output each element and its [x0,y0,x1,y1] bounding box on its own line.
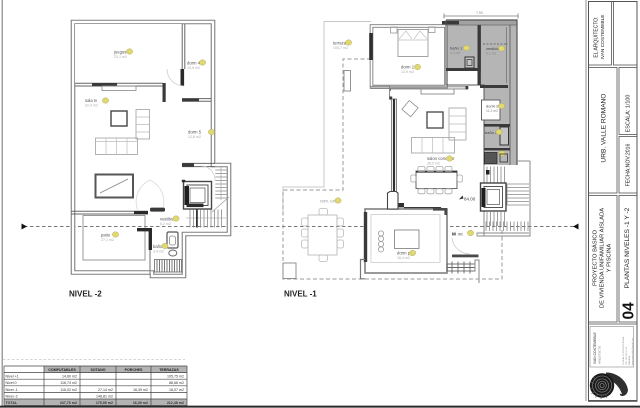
svg-text:247,76 m2: 247,76 m2 [60,401,77,405]
svg-text:TERRAZAS: TERRAZAS [159,368,179,372]
svg-text:3,4 m2: 3,4 m2 [153,250,164,254]
svg-text:MALAGA: MALAGA [628,355,631,365]
svg-text:patio: patio [101,233,111,238]
svg-text:27,14 m2: 27,14 m2 [98,388,113,392]
svg-text:4,3 m2: 4,3 m2 [450,51,460,55]
svg-text:6,2 m2: 6,2 m2 [160,222,171,226]
svg-text:Nivel -1: Nivel -1 [6,388,18,392]
svg-text:TOTAL: TOTAL [6,401,18,405]
svg-text:ARQUITECTO: ARQUITECTO [598,345,602,364]
svg-text:TLF: 952 80 12 34: TLF: 952 80 12 34 [626,346,628,365]
svg-text:212,48 m2: 212,48 m2 [167,401,184,405]
svg-text:ivancostemeble@gmail.com: ivancostemeble@gmail.com [631,337,634,365]
svg-text:04: 04 [621,302,638,320]
svg-text:7.90: 7.90 [476,11,483,15]
svg-text:FECHA:NOV.2016: FECHA:NOV.2016 [626,144,632,187]
svg-text:6,1 m2: 6,1 m2 [486,52,496,56]
svg-text:12,6 m2: 12,6 m2 [188,135,201,139]
svg-text:SOTANO: SOTANO [90,368,105,372]
svg-text:116,02 m2: 116,02 m2 [60,388,77,392]
svg-text:148,81 m2: 148,81 m2 [96,394,113,398]
svg-text:PROYECTO BÁSICO: PROYECTO BÁSICO [592,230,599,286]
svg-text:Nivel +1: Nivel +1 [6,375,19,379]
svg-text:116,74 m2: 116,74 m2 [60,381,77,385]
svg-text:PORCHES: PORCHES [125,368,143,372]
svg-text:wc: wc [458,232,463,237]
svg-text:DE VIVIENDA UNIFAMILIAR AISLAD: DE VIVIENDA UNIFAMILIAR AISLADA [600,208,606,308]
svg-text:sala tv: sala tv [85,98,98,103]
svg-text:105,75 m2: 105,75 m2 [167,375,184,379]
svg-text:EL ARQUITECTO:: EL ARQUITECTO: [594,16,600,57]
svg-text:juegos: juegos [113,50,126,55]
svg-text:105,7 m2: 105,7 m2 [333,46,348,50]
svg-text:dorm 4: dorm 4 [187,61,201,66]
svg-text:dorm 1: dorm 1 [401,65,415,70]
svg-text:14,60 m2: 14,60 m2 [62,375,77,379]
svg-text:11,2 m2: 11,2 m2 [486,109,498,113]
svg-text:13,9 m2: 13,9 m2 [401,70,414,74]
svg-text:com. ext: com. ext [320,199,337,204]
svg-text:16,39 m2: 16,39 m2 [133,388,148,392]
svg-text:NIVEL -2: NIVEL -2 [69,290,102,299]
svg-text:baño 1: baño 1 [450,46,463,51]
svg-text:16,4 m2: 16,4 m2 [397,256,410,260]
svg-text:10,9 m2: 10,9 m2 [187,66,200,70]
svg-text:terraza: terraza [333,41,347,46]
svg-text:C/ REAL 23 1ºB ESTEPONA: C/ REAL 23 1ºB ESTEPONA [622,336,625,365]
svg-text:27,1 m2: 27,1 m2 [101,238,114,242]
svg-text:38,9 m2: 38,9 m2 [427,162,440,166]
svg-text:84.00: 84.00 [464,197,476,202]
svg-text:Nivel 0: Nivel 0 [6,381,17,385]
svg-text:URB. VALLE ROMANO: URB. VALLE ROMANO [601,93,608,162]
svg-text:22,4 m2: 22,4 m2 [85,104,98,108]
svg-text:baño: baño [153,244,163,249]
svg-text:18,07 m2: 18,07 m2 [169,388,184,392]
svg-text:Y PISCINA: Y PISCINA [607,244,613,273]
svg-text:NIVEL -1: NIVEL -1 [284,290,317,299]
svg-text:IVAN COSTEMEBLE: IVAN COSTEMEBLE [600,15,606,60]
svg-text:Nivel -2: Nivel -2 [6,394,18,398]
svg-text:ESCALA: 1/100: ESCALA: 1/100 [626,95,632,133]
svg-text:88,66 m2: 88,66 m2 [169,381,184,385]
svg-text:dorm 2: dorm 2 [486,104,499,109]
svg-text:23,1 m2: 23,1 m2 [114,55,127,59]
svg-text:PLANTAS NIVELES -1 Y -2: PLANTAS NIVELES -1 Y -2 [624,207,631,288]
svg-text:16,39 m2: 16,39 m2 [133,401,148,405]
svg-text:dorm 5: dorm 5 [188,130,202,135]
svg-text:COMPUTABLES: COMPUTABLES [48,368,76,372]
svg-text:175,95 m2: 175,95 m2 [96,401,113,405]
svg-text:IVAN COSTEMEBLE: IVAN COSTEMEBLE [593,331,597,364]
svg-text:M: M [452,232,456,237]
